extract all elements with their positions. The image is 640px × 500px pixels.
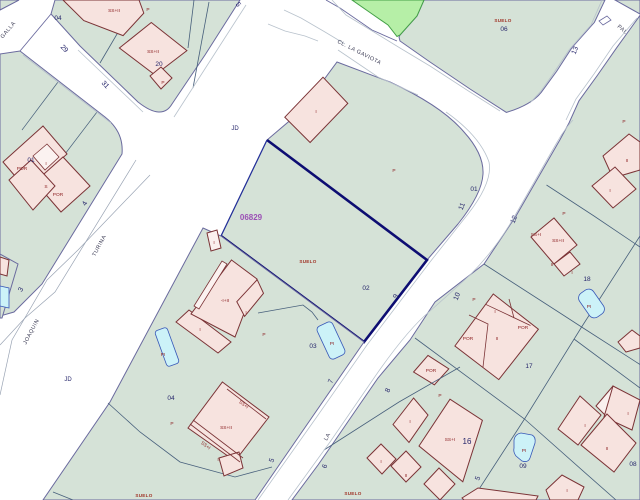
svg-text:I: I (409, 419, 410, 425)
svg-text:P: P (562, 211, 565, 217)
svg-text:I: I (199, 327, 200, 333)
svg-text:I: I (315, 109, 316, 115)
svg-text:II: II (626, 158, 629, 164)
svg-text:I: I (627, 411, 628, 417)
svg-text:SS+I: SS+I (445, 437, 456, 443)
svg-text:SS+I: SS+I (531, 232, 542, 238)
svg-text:16: 16 (463, 437, 472, 446)
svg-text:I: I (380, 459, 381, 465)
svg-text:PI: PI (330, 341, 335, 347)
svg-text:04: 04 (167, 395, 175, 402)
svg-text:I: I (217, 457, 218, 463)
svg-text:-I+II: -I+II (221, 298, 229, 304)
svg-text:I: I (571, 270, 572, 276)
svg-text:03: 03 (309, 343, 317, 350)
svg-text:P: P (170, 421, 173, 427)
svg-text:06829: 06829 (240, 213, 263, 222)
svg-text:P: P (161, 80, 164, 86)
svg-text:POR: POR (426, 368, 437, 374)
svg-text:JD: JD (231, 126, 239, 132)
svg-text:II: II (496, 336, 499, 342)
svg-text:18: 18 (583, 276, 591, 283)
svg-text:JD: JD (64, 377, 72, 383)
svg-text:02: 02 (362, 285, 370, 292)
svg-text:SS+II: SS+II (552, 238, 564, 244)
svg-text:SUELO: SUELO (494, 18, 511, 23)
svg-text:SS+II: SS+II (108, 8, 120, 14)
svg-text:I: I (494, 309, 495, 315)
svg-text:P: P (438, 393, 441, 399)
svg-text:POR: POR (518, 325, 529, 331)
svg-text:P: P (392, 168, 395, 174)
svg-text:I: I (213, 240, 214, 246)
svg-text:SUELO: SUELO (344, 491, 361, 496)
svg-text:II: II (551, 262, 554, 268)
svg-text:09: 09 (519, 463, 527, 470)
svg-text:I: I (566, 488, 567, 494)
svg-text:II: II (405, 473, 408, 479)
svg-text:P: P (472, 297, 475, 303)
svg-text:08: 08 (629, 461, 637, 468)
svg-text:POR: POR (53, 192, 64, 198)
svg-text:SS+II: SS+II (147, 49, 159, 55)
svg-text:01: 01 (470, 186, 478, 193)
svg-text:06: 06 (500, 26, 508, 33)
svg-text:PI: PI (587, 304, 592, 310)
svg-text:II: II (606, 446, 609, 452)
svg-text:SUELO: SUELO (299, 259, 316, 264)
svg-text:17: 17 (525, 363, 533, 370)
svg-text:P: P (622, 119, 625, 125)
svg-text:I: I (584, 423, 585, 429)
svg-text:04: 04 (54, 15, 62, 22)
svg-text:01: 01 (27, 157, 35, 164)
svg-text:SS+II: SS+II (220, 425, 232, 431)
svg-text:PI: PI (522, 448, 527, 454)
svg-text:PI: PI (161, 352, 166, 358)
svg-text:20: 20 (155, 61, 163, 68)
svg-text:P: P (262, 332, 265, 338)
svg-text:POR: POR (463, 336, 474, 342)
svg-text:POR: POR (17, 166, 28, 172)
svg-text:SUELO: SUELO (135, 493, 152, 498)
svg-text:S: S (44, 184, 47, 190)
svg-text:I: I (609, 188, 610, 194)
svg-text:P: P (146, 7, 149, 13)
svg-text:I: I (245, 310, 246, 316)
svg-text:I: I (45, 161, 46, 167)
